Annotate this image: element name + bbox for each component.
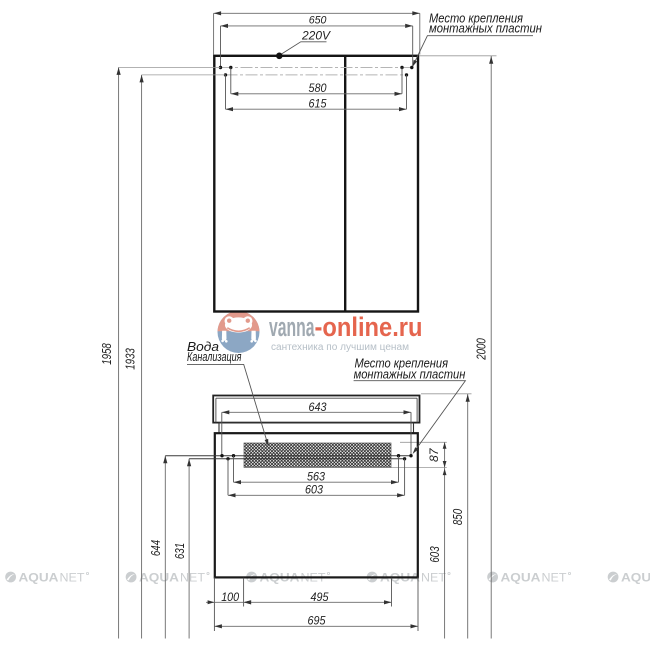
svg-text:Канализация: Канализация: [187, 350, 242, 364]
svg-text:NET: NET: [60, 570, 85, 584]
svg-text:AQUA: AQUA: [19, 570, 59, 584]
svg-text:1958: 1958: [100, 343, 114, 365]
svg-text:850: 850: [451, 509, 465, 525]
svg-text:643: 643: [309, 400, 327, 414]
svg-text:644: 644: [149, 540, 163, 556]
svg-text:монтажных пластин: монтажных пластин: [354, 367, 466, 381]
svg-text:сантехника по лучшим ценам: сантехника по лучшим ценам: [271, 342, 409, 353]
svg-text:87: 87: [427, 447, 441, 462]
svg-text:NET: NET: [421, 570, 446, 584]
svg-text:563: 563: [307, 470, 325, 484]
svg-text:650: 650: [309, 15, 327, 27]
svg-text:2000: 2000: [475, 338, 489, 360]
svg-text:603: 603: [428, 546, 442, 562]
svg-text:NET: NET: [180, 570, 205, 584]
svg-text:615: 615: [309, 97, 327, 111]
svg-text:AQUA: AQUA: [501, 570, 541, 584]
svg-text:580: 580: [309, 81, 327, 95]
svg-text:AQUA: AQUA: [621, 570, 650, 584]
svg-text:AQUA: AQUA: [139, 570, 179, 584]
svg-text:695: 695: [308, 614, 326, 628]
svg-text:631: 631: [173, 543, 187, 559]
svg-text:-online.ru: -online.ru: [315, 312, 423, 342]
svg-text:1933: 1933: [124, 348, 138, 370]
svg-text:603: 603: [305, 483, 323, 497]
svg-text:100: 100: [221, 590, 239, 604]
svg-text:NET: NET: [542, 570, 567, 584]
svg-text:vanna: vanna: [269, 312, 315, 342]
svg-text:220V: 220V: [301, 29, 331, 43]
svg-text:495: 495: [311, 590, 329, 604]
svg-text:монтажных пластин: монтажных пластин: [429, 22, 542, 36]
